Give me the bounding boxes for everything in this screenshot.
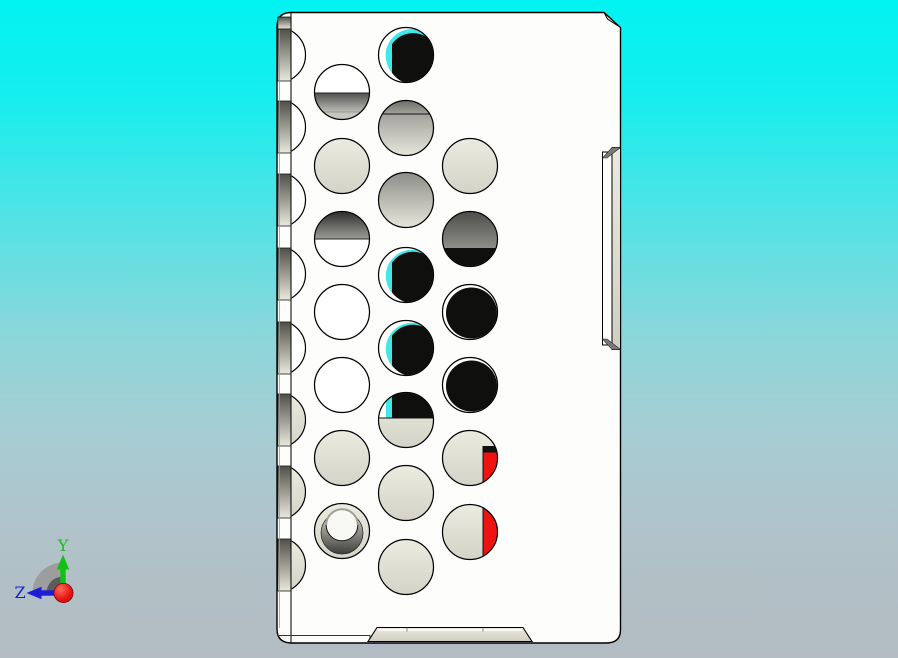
hole[interactable]: [443, 358, 498, 413]
hole[interactable]: [443, 505, 499, 560]
origin-sphere: [54, 583, 73, 602]
hole[interactable]: [315, 285, 370, 340]
cad-viewport[interactable]: Y Z: [0, 0, 898, 658]
hole[interactable]: [443, 285, 498, 340]
hole[interactable]: [443, 139, 498, 194]
hole[interactable]: [379, 466, 434, 521]
hole[interactable]: [315, 504, 370, 559]
hole[interactable]: [379, 540, 434, 595]
hole[interactable]: [315, 139, 370, 194]
hole[interactable]: [315, 211, 370, 267]
model-part[interactable]: [251, 13, 621, 644]
right-tab-face[interactable]: [612, 148, 621, 350]
strip-notch: [278, 17, 291, 29]
z-axis-label: Z: [14, 583, 25, 602]
hole[interactable]: [379, 393, 434, 448]
bottom-tab[interactable]: [368, 628, 532, 642]
orientation-triad: Y Z: [14, 536, 73, 603]
hole[interactable]: [443, 211, 498, 267]
hole[interactable]: [315, 65, 370, 121]
right-tab[interactable]: [603, 148, 621, 350]
y-axis-label: Y: [57, 536, 69, 555]
y-axis-arrowhead: [57, 555, 69, 570]
hole[interactable]: [379, 100, 434, 156]
hole[interactable]: [379, 173, 434, 228]
hole[interactable]: [315, 431, 370, 486]
right-tab-side[interactable]: [603, 152, 613, 345]
hole[interactable]: [315, 358, 370, 413]
